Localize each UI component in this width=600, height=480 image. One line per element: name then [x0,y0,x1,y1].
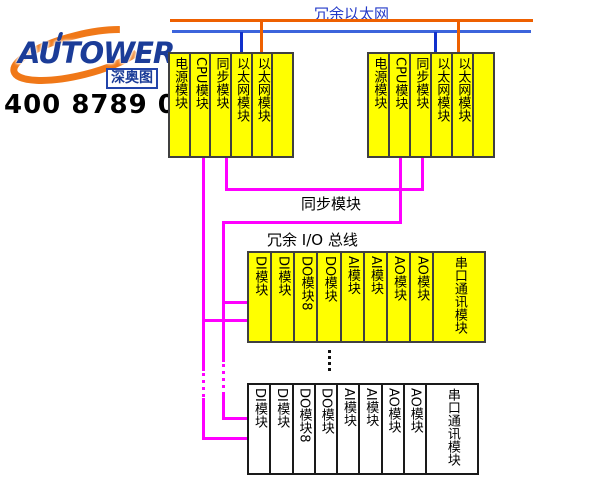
module-label: DO模块8 [297,388,311,473]
cpu-module: CPU模块 [390,54,411,156]
module-label: 以太网模块 [255,57,269,156]
io-bus-b-vertical [222,221,225,362]
module-label: AO模块 [391,256,405,341]
module-label: DO模块 [322,256,336,341]
module-label: AI模块 [368,256,382,341]
sync-link-horizontal [225,188,424,191]
io-bus-a-vertical [202,158,205,371]
redundant-io-bus-label: 冗余 I/O 总线 [267,229,358,250]
diagram-canvas: AUTOWER 深奥图 400 8789 055 冗余以太网 同步模块 冗余 I… [0,0,600,480]
io-bus-a-dashed [202,373,205,398]
empty-slot [273,54,292,156]
do-module: DO模块8 [295,253,318,341]
ethernet-module: 以太网模块 [453,54,474,156]
empty-slot [474,54,493,156]
module-label: 以太网模块 [235,57,249,156]
ao-module: AO模块 [383,385,405,473]
sync-link-drop-rack1 [225,158,228,191]
sync-module: 同步模块 [211,54,232,156]
module-label: 以太网模块 [456,57,470,156]
module-label: DI模块 [252,388,266,473]
module-label: AO模块 [386,388,400,473]
io-bus-a-branch-bottom-rack [202,437,250,440]
company-logo: AUTOWER 深奥图 [6,20,164,96]
ethernet-module: 以太网模块 [432,54,453,156]
ethernet-module: 以太网模块 [253,54,274,156]
module-label: CPU模块 [193,57,207,156]
di-module: DI模块 [249,253,272,341]
di-module: DI模块 [272,253,295,341]
io-rack-n: DI模块 DI模块 DO模块8 DO模块 AI模块 AI模块 AO模块 AO模块… [247,383,479,475]
serial-comm-module: 串口通讯模块 [427,385,477,473]
module-label: AI模块 [345,256,359,341]
ai-module: AI模块 [342,253,365,341]
serial-comm-module: 串口通讯模块 [434,253,484,341]
module-label: DI模块 [253,256,267,341]
do-module: DO模块 [316,385,338,473]
ethernet-module: 以太网模块 [232,54,253,156]
module-label: 同步模块 [214,57,228,156]
ao-module: AO模块 [405,385,427,473]
ai-module: AI模块 [338,385,360,473]
module-label: AI模块 [341,388,355,473]
module-label: DO模块8 [299,256,313,341]
di-module: DI模块 [271,385,293,473]
power-module: 电源模块 [170,54,191,156]
module-label: 电源模块 [372,57,386,156]
logo-wordmark: AUTOWER [18,36,174,70]
ethernet-drop-b-rack1 [240,32,243,52]
ai-module: AI模块 [365,253,388,341]
cpu-rack-1: 电源模块 CPU模块 同步模块 以太网模块 以太网模块 [168,52,294,158]
module-label: 同步模块 [414,57,428,156]
io-bus-b-branch-bottom-rack [222,417,250,420]
module-label: 以太网模块 [435,57,449,156]
do-module: DO模块8 [294,385,316,473]
module-label: DI模块 [276,256,290,341]
module-label: 串口通讯模块 [445,388,459,473]
sync-link-label: 同步模块 [301,193,361,214]
io-bus-a-vertical-lower [202,398,205,440]
ethernet-line-a [170,19,533,22]
module-label: CPU模块 [393,57,407,156]
io-bus-b-horizontal [222,221,402,224]
cpu-rack-2: 电源模块 CPU模块 同步模块 以太网模块 以太网模块 [367,52,495,158]
logo-chinese-name: 深奥图 [106,68,158,89]
cpu-module: CPU模块 [191,54,212,156]
ao-module: AO模块 [411,253,434,341]
io-bus-b-dashed [222,364,225,393]
ai-module: AI模块 [360,385,382,473]
module-label: 串口通讯模块 [452,256,466,341]
io-bus-b-branch-top-rack [222,301,250,304]
io-bus-b-vertical-lower [222,393,225,420]
ethernet-drop-a-rack1 [260,21,263,52]
module-label: AO模块 [415,256,429,341]
io-rack-1: DI模块 DI模块 DO模块8 DO模块 AI模块 AI模块 AO模块 AO模块… [247,251,486,343]
sync-module: 同步模块 [411,54,432,156]
module-label: 电源模块 [173,57,187,156]
do-module: DO模块 [318,253,341,341]
di-module: DI模块 [249,385,271,473]
ethernet-line-b [172,30,531,33]
module-label: AO模块 [408,388,422,473]
io-bus-b-drop-rack2 [399,158,402,224]
ethernet-drop-b-rack2 [434,32,437,52]
ao-module: AO模块 [388,253,411,341]
power-module: 电源模块 [369,54,390,156]
module-label: AI模块 [364,388,378,473]
ellipsis-dots [328,350,331,371]
module-label: DO模块 [319,388,333,473]
io-bus-a-branch-top-rack [202,319,250,322]
ethernet-drop-a-rack2 [457,21,460,52]
sync-link-drop-rack2 [421,158,424,191]
module-label: DI模块 [275,388,289,473]
